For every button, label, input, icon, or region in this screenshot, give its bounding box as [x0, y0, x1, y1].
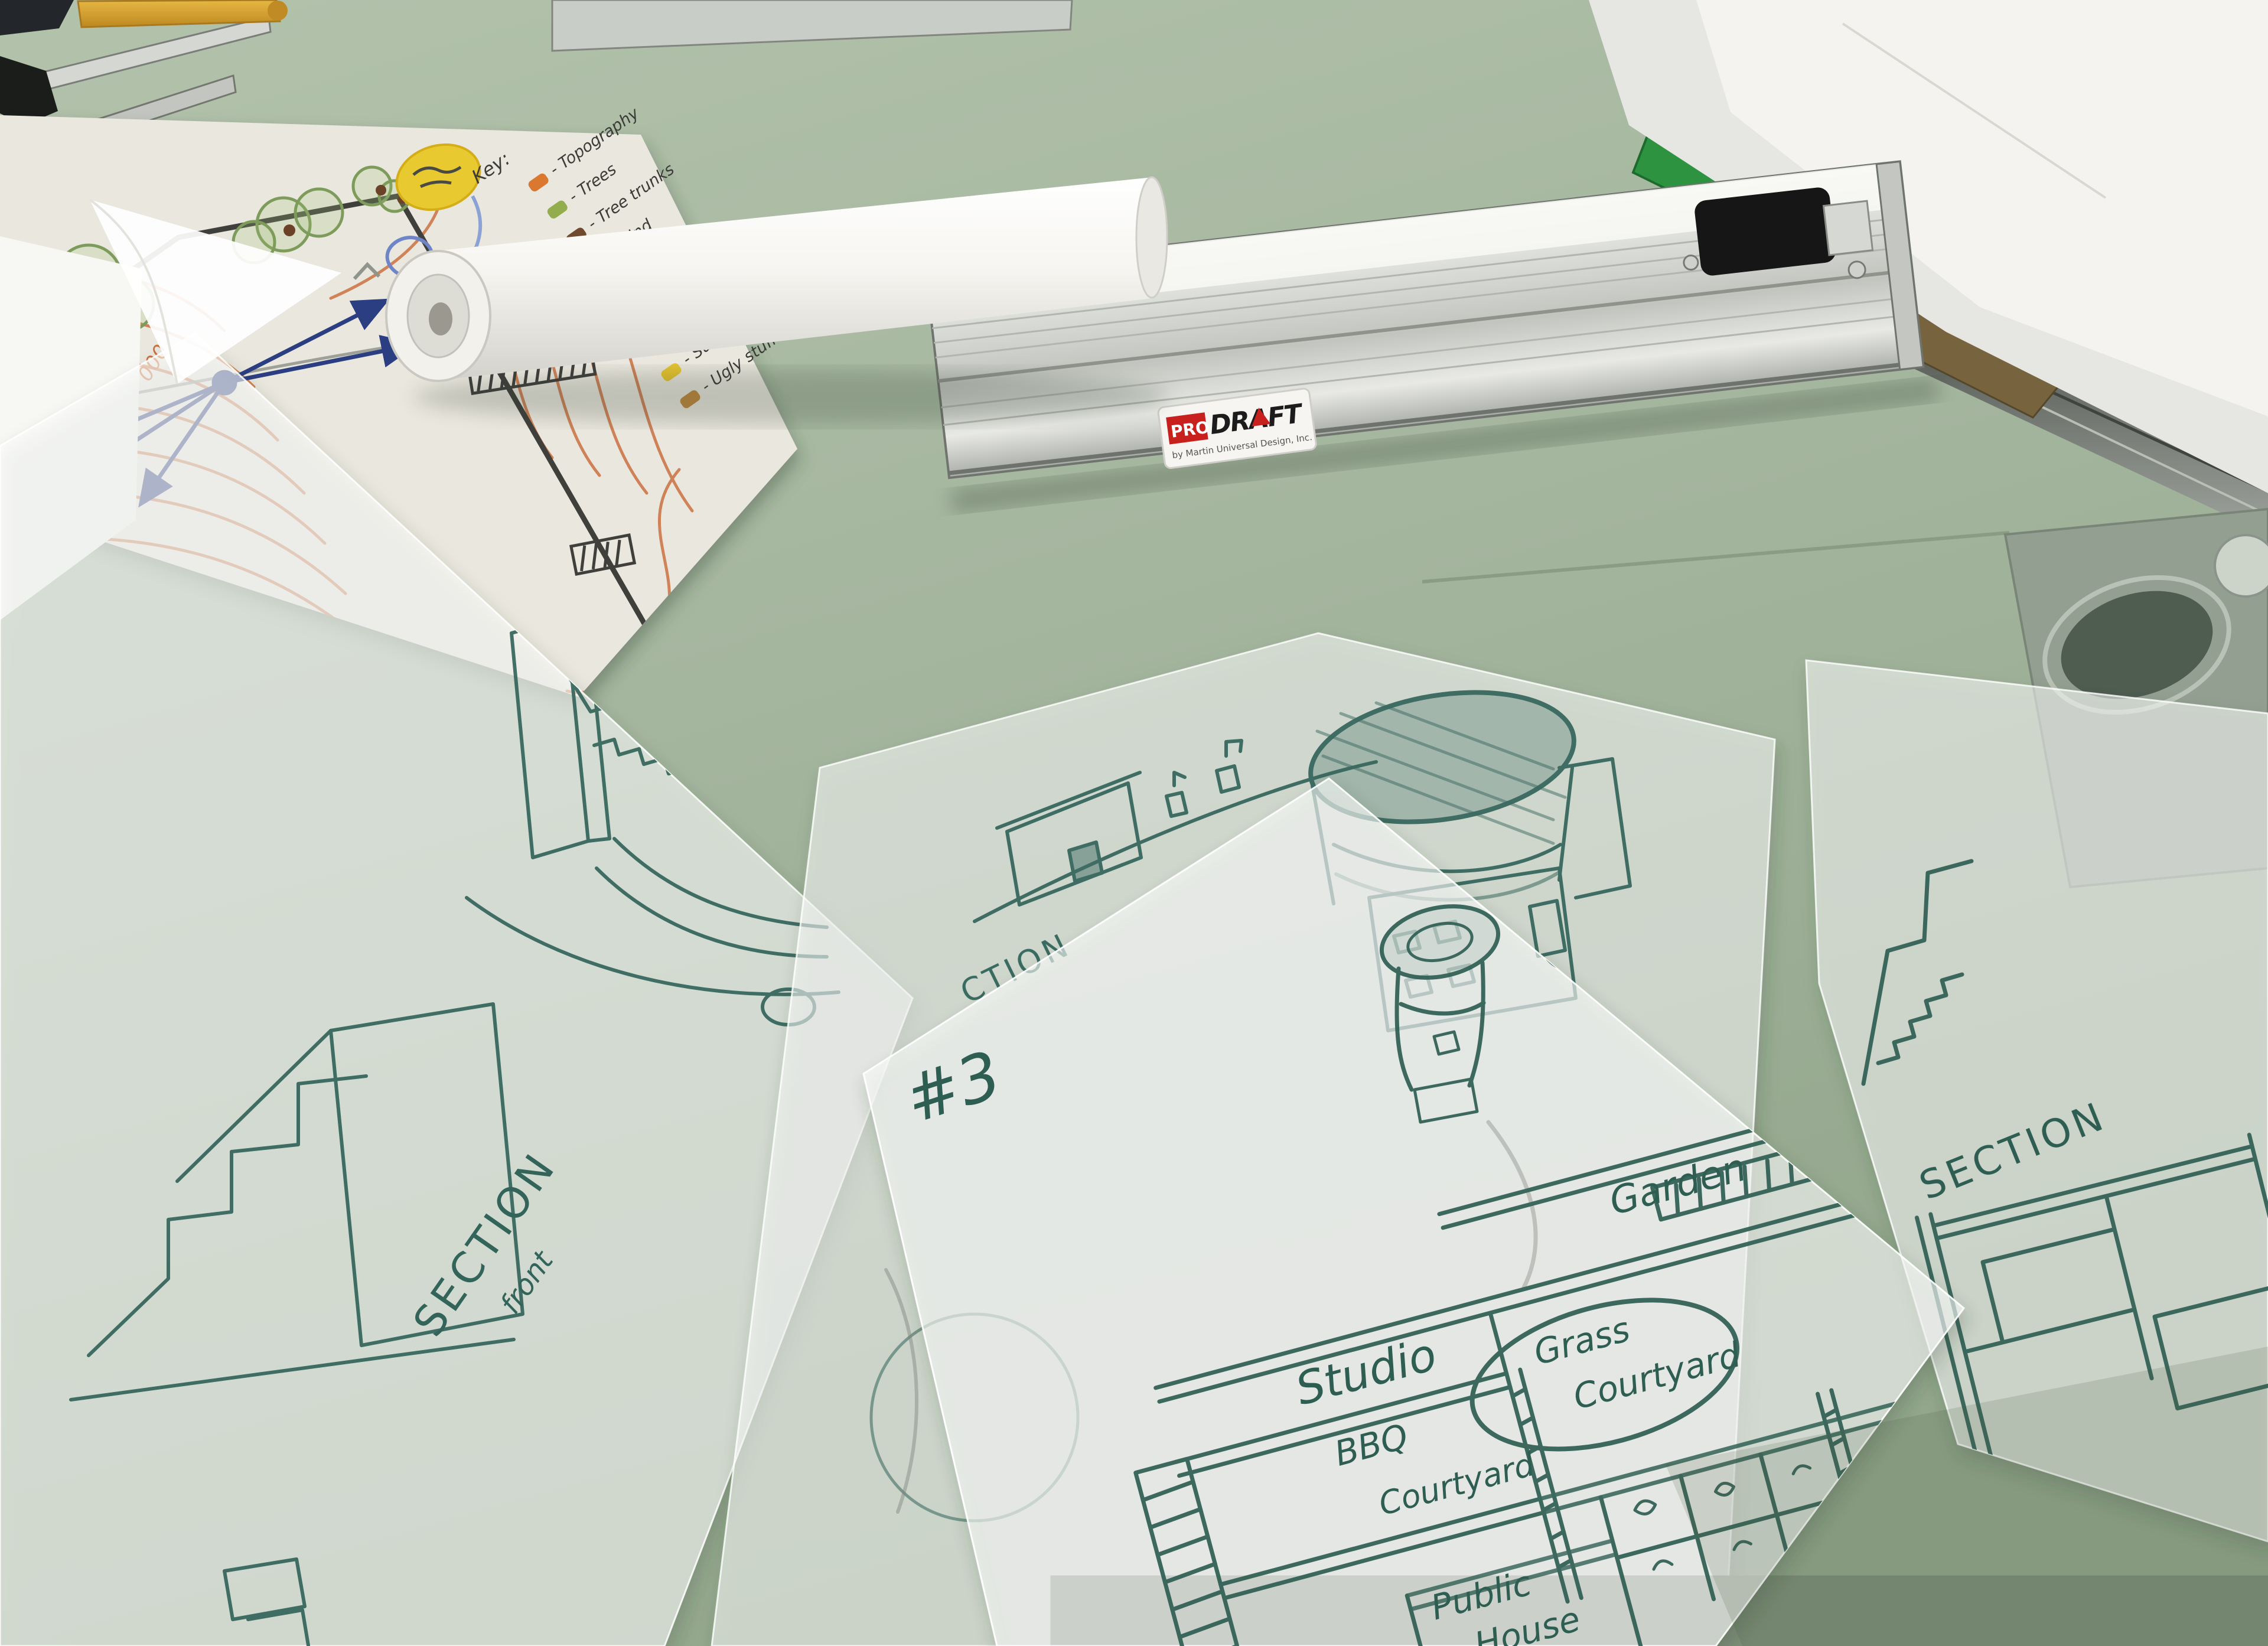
- scene: 000 Key: - Topography - Trees - Tree tru…: [0, 0, 2268, 1646]
- drafting-table-photo: 000 Key: - Topography - Trees - Tree tru…: [0, 0, 2268, 1646]
